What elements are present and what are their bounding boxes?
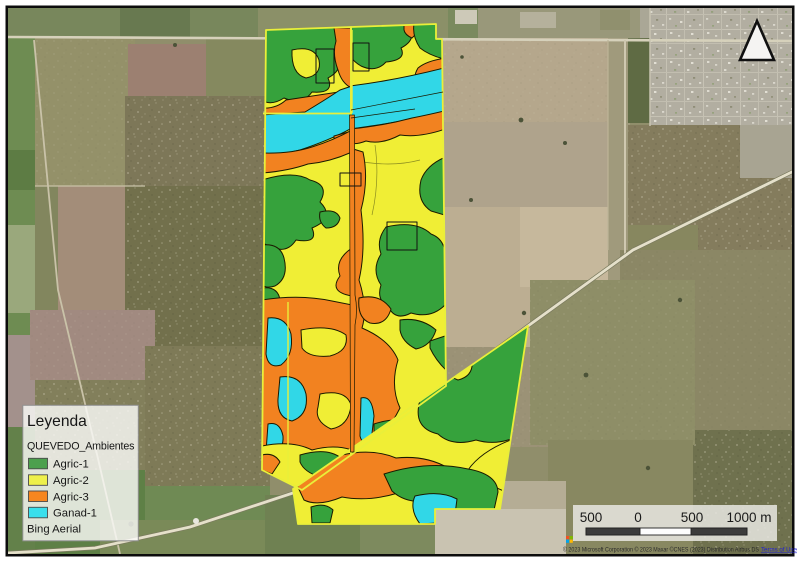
svg-text:500: 500 <box>580 510 603 525</box>
svg-text:Agric-1: Agric-1 <box>53 459 89 471</box>
svg-text:QUEVEDO_Ambientes: QUEVEDO_Ambientes <box>27 441 134 453</box>
svg-text:500: 500 <box>681 510 704 525</box>
svg-text:Ganad-1: Ganad-1 <box>53 508 97 520</box>
svg-text:Agric-3: Agric-3 <box>53 492 89 504</box>
svg-text:0: 0 <box>634 510 642 525</box>
svg-text:© 2023 Microsoft Corporation ©: © 2023 Microsoft Corporation © 2023 Maxa… <box>563 547 759 554</box>
svg-text:Terms of Use: Terms of Use <box>761 548 798 554</box>
svg-text:Agric-2: Agric-2 <box>53 475 89 487</box>
svg-text:Bing Aerial: Bing Aerial <box>27 524 81 536</box>
svg-text:Leyenda: Leyenda <box>27 413 87 430</box>
svg-text:1000 m: 1000 m <box>726 510 771 525</box>
